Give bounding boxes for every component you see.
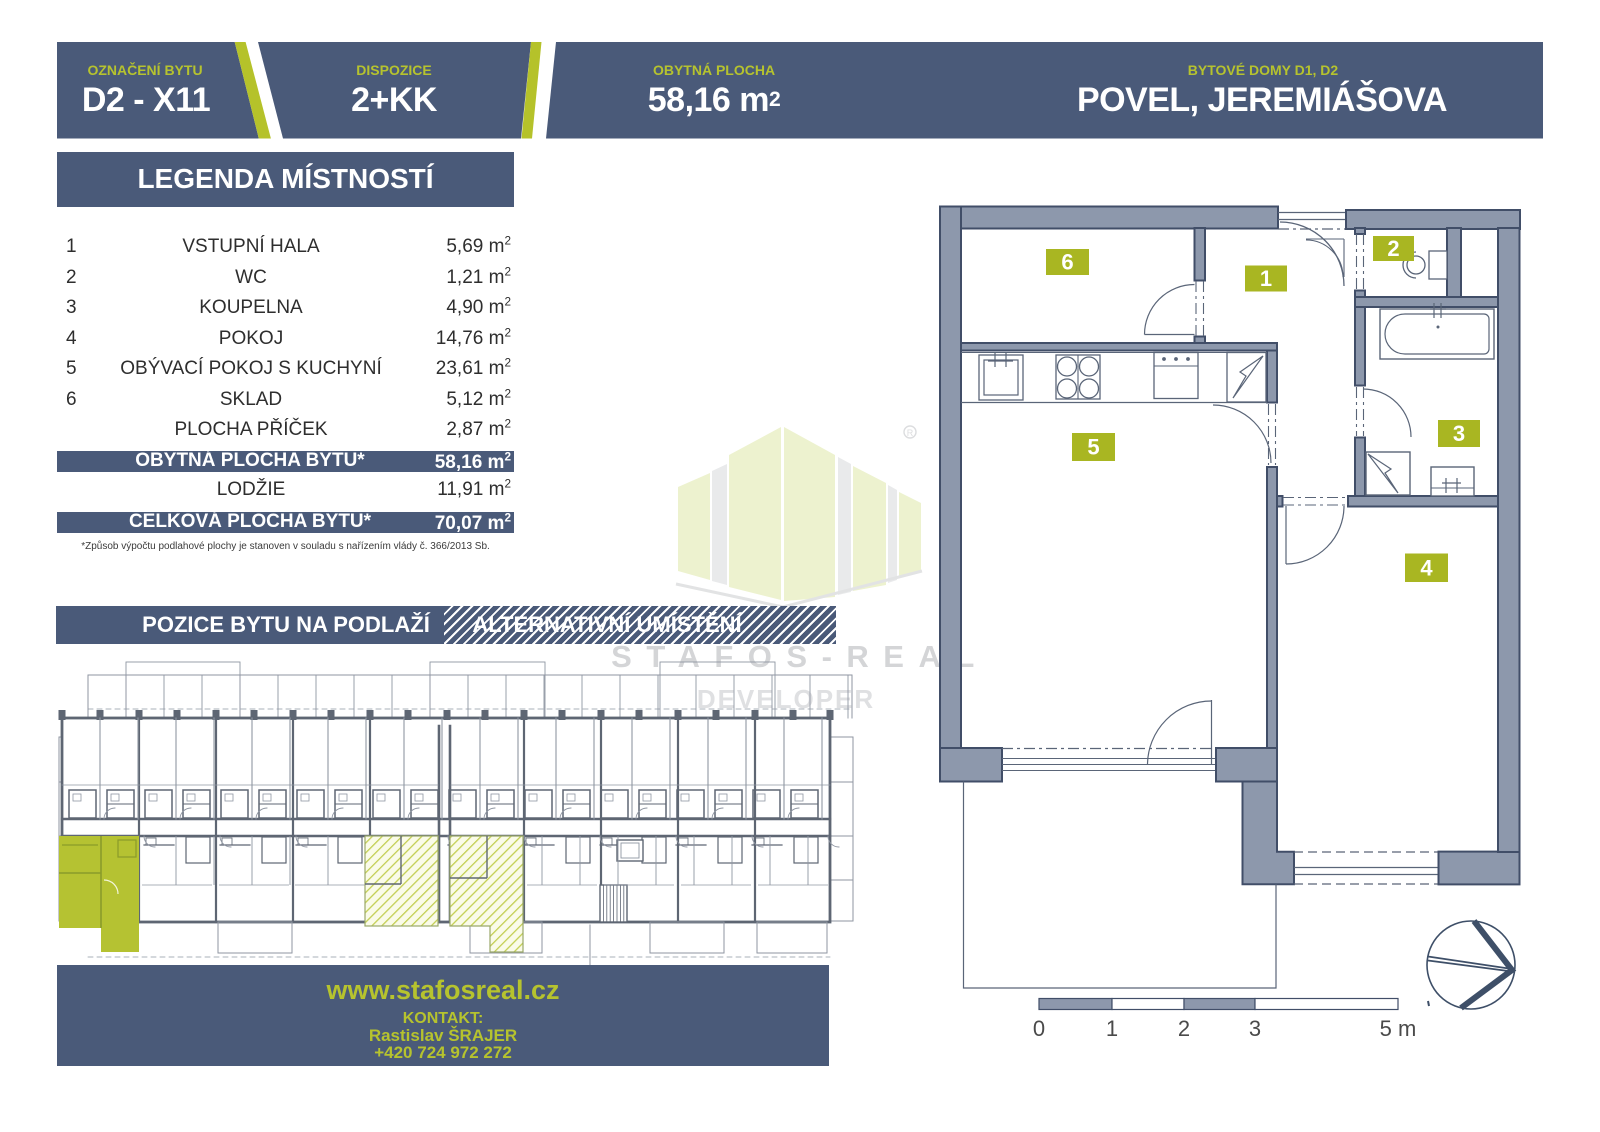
svg-text:3: 3 — [1453, 421, 1465, 446]
svg-text:R: R — [907, 428, 914, 438]
svg-text:1: 1 — [1106, 1016, 1118, 1041]
svg-text:STAFOS-REAL: STAFOS-REAL — [611, 639, 989, 674]
svg-text:1: 1 — [1260, 266, 1272, 291]
svg-text:5 m: 5 m — [1380, 1016, 1417, 1041]
svg-text:6: 6 — [1061, 250, 1073, 275]
svg-text:4: 4 — [1420, 555, 1433, 580]
svg-text:3: 3 — [1249, 1016, 1261, 1041]
svg-text:2: 2 — [1178, 1016, 1190, 1041]
svg-text:5: 5 — [1087, 435, 1099, 460]
svg-text:2: 2 — [1387, 236, 1399, 261]
svg-text:0: 0 — [1033, 1016, 1045, 1041]
